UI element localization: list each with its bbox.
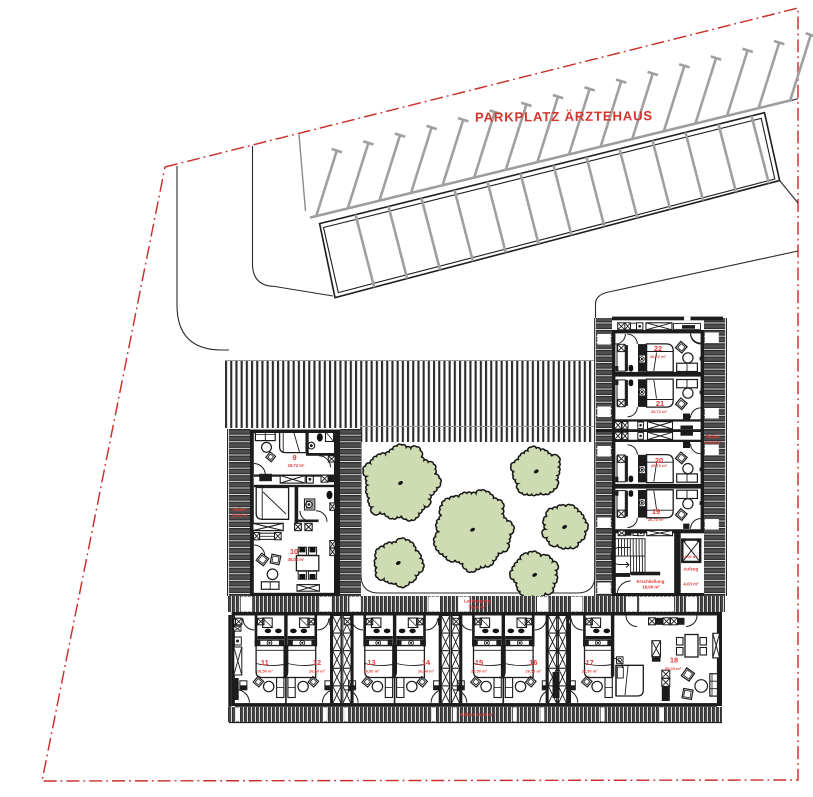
- svg-text:17: 17: [585, 658, 593, 667]
- svg-text:10,00 m²: 10,00 m²: [232, 513, 249, 518]
- svg-text:55,03 m²: 55,03 m²: [665, 666, 682, 671]
- svg-text:79,80 m²: 79,80 m²: [468, 605, 486, 610]
- svg-text:26,50 m²: 26,50 m²: [418, 669, 435, 674]
- svg-text:Balkon: Balkon: [706, 434, 720, 439]
- svg-text:26,50 m²: 26,50 m²: [582, 669, 599, 674]
- svg-text:10: 10: [290, 547, 298, 556]
- svg-text:19: 19: [652, 507, 660, 516]
- svg-text:PARKPLATZ ÄRZTEHAUS: PARKPLATZ ÄRZTEHAUS: [475, 108, 653, 125]
- svg-text:26,72 m²: 26,72 m²: [651, 463, 668, 468]
- svg-text:18,90 m²: 18,90 m²: [642, 585, 660, 590]
- svg-text:26,72 m²: 26,72 m²: [288, 463, 305, 468]
- svg-text:9: 9: [292, 453, 296, 462]
- svg-text:10,00 m²: 10,00 m²: [705, 440, 722, 445]
- svg-text:26,72 m²: 26,72 m²: [648, 517, 665, 522]
- svg-text:Balkon: Balkon: [233, 507, 247, 512]
- svg-text:26,50 m²: 26,50 m²: [363, 669, 380, 674]
- svg-text:26,72 m²: 26,72 m²: [651, 409, 668, 414]
- svg-text:15: 15: [475, 658, 483, 667]
- svg-text:Laubengang: Laubengang: [464, 599, 490, 604]
- svg-text:22: 22: [654, 344, 662, 353]
- svg-text:4,02 m²: 4,02 m²: [684, 554, 698, 559]
- svg-text:16: 16: [529, 658, 537, 667]
- svg-text:4,03 m²: 4,03 m²: [683, 582, 699, 587]
- svg-text:Aufzug: Aufzug: [683, 567, 698, 572]
- svg-text:11: 11: [261, 658, 269, 667]
- svg-text:Erschließung: Erschließung: [637, 579, 665, 584]
- svg-text:48,04 m²: 48,04 m²: [288, 557, 305, 562]
- svg-text:12: 12: [313, 658, 321, 667]
- svg-text:26,50 m²: 26,50 m²: [257, 669, 274, 674]
- svg-text:18: 18: [670, 656, 678, 665]
- svg-text:13: 13: [367, 658, 375, 667]
- svg-text:14: 14: [422, 658, 431, 667]
- svg-text:26,50 m²: 26,50 m²: [525, 669, 542, 674]
- svg-text:21: 21: [656, 399, 664, 408]
- svg-text:26,72 m²: 26,72 m²: [650, 354, 667, 359]
- svg-text:Balkon 56,20 m²: Balkon 56,20 m²: [460, 712, 494, 717]
- svg-text:26,50 m²: 26,50 m²: [471, 669, 488, 674]
- svg-text:26,50 m²: 26,50 m²: [309, 669, 326, 674]
